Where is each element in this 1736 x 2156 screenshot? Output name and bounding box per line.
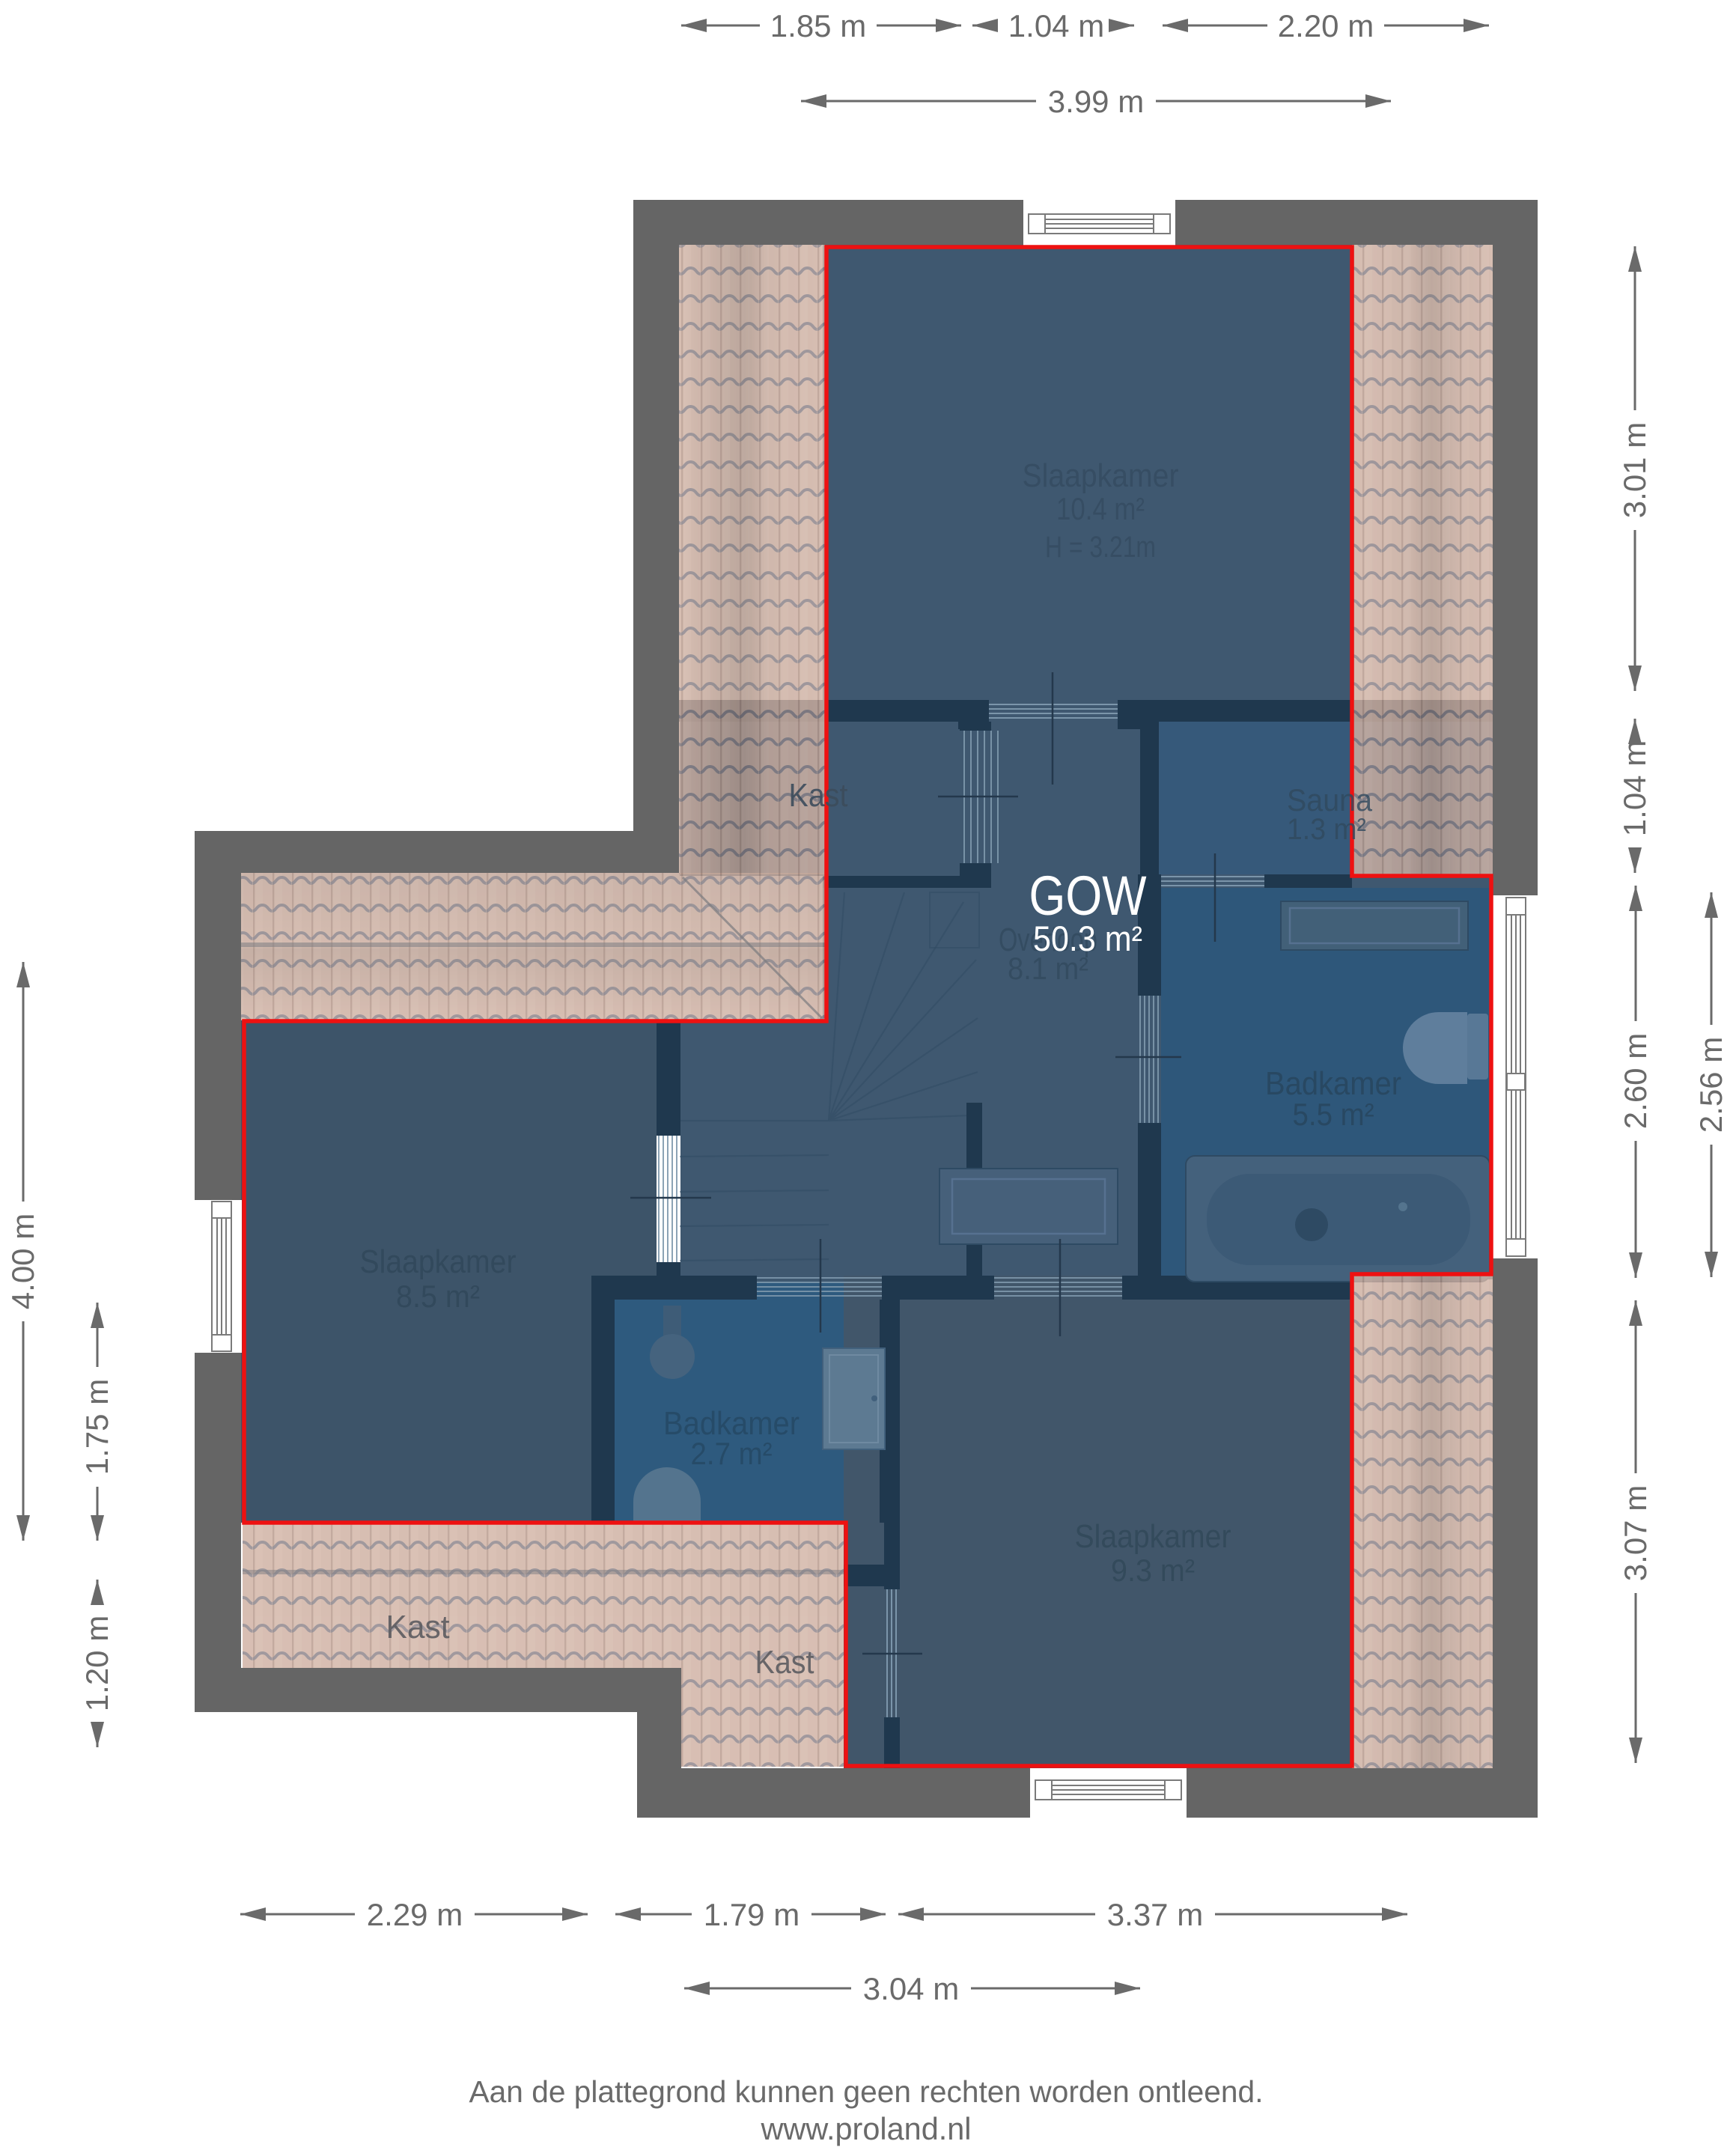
svg-text:www.proland.nl: www.proland.nl — [761, 2111, 972, 2146]
svg-text:50.3 m²: 50.3 m² — [1033, 919, 1142, 958]
svg-text:Kast: Kast — [755, 1644, 814, 1681]
svg-text:Slaapkamer: Slaapkamer — [1075, 1518, 1231, 1555]
svg-text:1.3 m²: 1.3 m² — [1287, 813, 1366, 846]
svg-text:8.5 m²: 8.5 m² — [396, 1279, 480, 1314]
svg-text:3.99 m: 3.99 m — [1048, 84, 1144, 119]
svg-text:2.7 m²: 2.7 m² — [691, 1436, 773, 1471]
svg-text:10.4 m²: 10.4 m² — [1056, 491, 1145, 526]
svg-text:4.00 m: 4.00 m — [5, 1213, 40, 1309]
svg-text:1.75 m: 1.75 m — [79, 1379, 115, 1475]
svg-text:Kast: Kast — [386, 1609, 450, 1645]
svg-text:1.79 m: 1.79 m — [704, 1897, 800, 1932]
svg-text:Aan de plattegrond kunnen geen: Aan de plattegrond kunnen geen rechten w… — [469, 2074, 1264, 2109]
svg-text:3.07 m: 3.07 m — [1618, 1485, 1653, 1581]
svg-text:Slaapkamer: Slaapkamer — [360, 1243, 517, 1280]
svg-text:2.56 m: 2.56 m — [1693, 1037, 1729, 1133]
svg-text:Slaapkamer: Slaapkamer — [1023, 457, 1179, 494]
svg-text:5.5 m²: 5.5 m² — [1293, 1097, 1374, 1132]
svg-text:1.85 m: 1.85 m — [770, 8, 866, 43]
svg-text:2.29 m: 2.29 m — [367, 1897, 463, 1932]
svg-text:Kast: Kast — [789, 777, 848, 814]
svg-text:3.04 m: 3.04 m — [863, 1971, 959, 2006]
svg-text:1.04 m: 1.04 m — [1008, 8, 1104, 43]
svg-text:GOW: GOW — [1029, 865, 1147, 927]
svg-text:2.60 m: 2.60 m — [1618, 1033, 1653, 1129]
svg-text:1.04 m: 1.04 m — [1617, 740, 1652, 836]
svg-text:1.20 m: 1.20 m — [79, 1616, 115, 1711]
svg-text:3.37 m: 3.37 m — [1107, 1897, 1203, 1932]
svg-text:Sauna: Sauna — [1287, 782, 1373, 817]
svg-text:3.01 m: 3.01 m — [1617, 422, 1652, 518]
svg-text:H = 3.21m: H = 3.21m — [1045, 531, 1156, 564]
svg-text:2.20 m: 2.20 m — [1278, 8, 1374, 43]
svg-text:9.3 m²: 9.3 m² — [1111, 1553, 1195, 1588]
